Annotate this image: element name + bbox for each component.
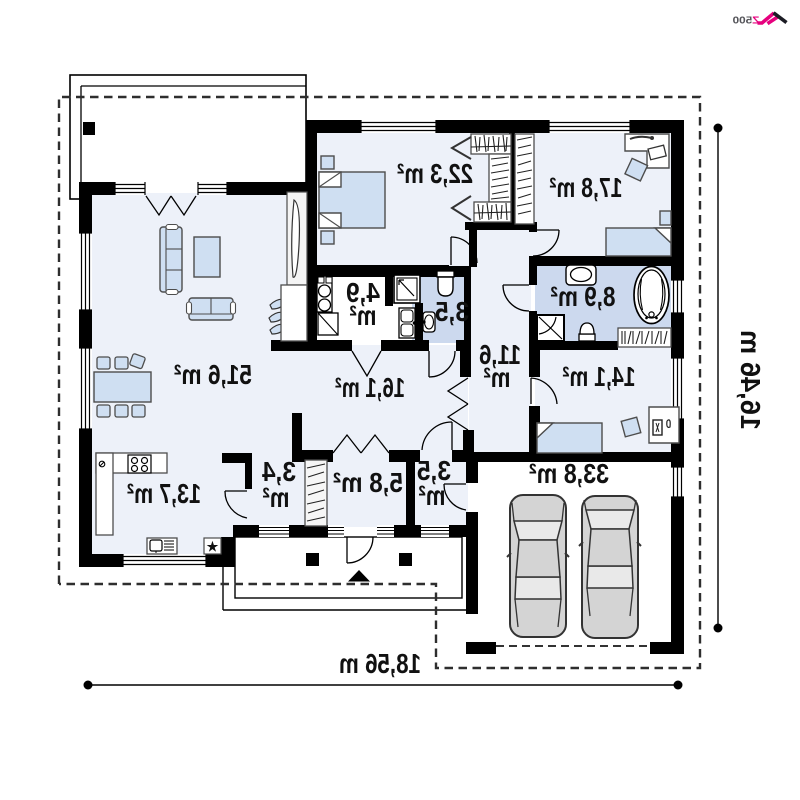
svg-text:8,9 m²: 8,9 m² (551, 281, 616, 312)
svg-text:m²: m² (484, 362, 511, 393)
svg-text:★: ★ (207, 539, 219, 554)
svg-text:m²: m² (350, 300, 377, 331)
svg-text:18,56 m: 18,56 m (339, 648, 421, 679)
svg-text:16,1 m²: 16,1 m² (335, 372, 405, 403)
svg-text:Z500: Z500 (732, 15, 759, 27)
svg-text:33,8 m²: 33,8 m² (529, 458, 609, 489)
svg-text:3,5: 3,5 (435, 296, 469, 327)
svg-text:17,8 m²: 17,8 m² (550, 172, 623, 203)
svg-text:14,1 m²: 14,1 m² (563, 361, 636, 392)
svg-text:5,8 m²: 5,8 m² (333, 467, 403, 498)
svg-text:m²: m² (419, 480, 446, 511)
svg-text:13,7 m²: 13,7 m² (127, 478, 201, 509)
svg-text:m²: m² (263, 482, 290, 513)
svg-text:16,46 m: 16,46 m (735, 330, 766, 430)
svg-text:22,3 m²: 22,3 m² (397, 158, 473, 189)
svg-text:51,6 m²: 51,6 m² (174, 359, 252, 390)
